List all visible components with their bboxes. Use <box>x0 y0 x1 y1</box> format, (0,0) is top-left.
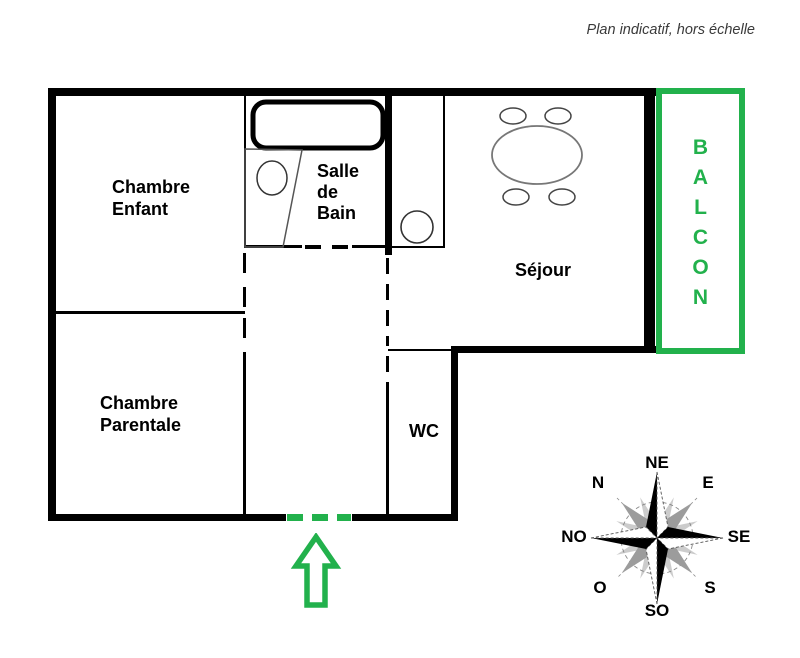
room-label-sejour: Séjour <box>515 259 571 281</box>
compass-label-o: O <box>593 578 606 598</box>
wall-hallway-left <box>243 364 246 516</box>
hallway-right-dashes-upper <box>386 258 389 346</box>
wall-closet-bottom <box>388 246 445 248</box>
balcony-letter: B <box>693 133 708 163</box>
wall-left <box>48 88 56 521</box>
balcony-letter: C <box>693 223 708 253</box>
wall-wc-right <box>451 346 458 521</box>
wall-right-outer <box>644 88 655 353</box>
room-label-chambre-enfant: Chambre Enfant <box>112 176 190 220</box>
bathroom-door-dashes <box>305 245 349 249</box>
balcony-letter: N <box>693 283 708 313</box>
compass-label-n: N <box>592 473 604 493</box>
entrance-arrow-icon <box>290 533 342 609</box>
wall-bottom-left <box>48 514 286 521</box>
balcony-letter: A <box>693 163 708 193</box>
floor-plan: Plan indicatif, hors échelle B A L C O N <box>0 0 800 658</box>
wall-wc-left <box>386 398 389 516</box>
wall-bottom-right <box>352 514 458 521</box>
wall-parental-top <box>52 311 245 314</box>
room-label-wc: WC <box>409 420 439 442</box>
wall-closet-right <box>443 92 445 248</box>
wc-door-dashes <box>386 356 389 398</box>
compass-label-ne: NE <box>645 453 669 473</box>
compass-label-no: NO <box>561 527 587 547</box>
water-heater-icon <box>399 209 435 245</box>
wall-top <box>48 88 656 96</box>
balcony-letter: O <box>692 253 708 283</box>
wall-bathroom-bottom-right <box>352 245 388 248</box>
wall-sejour-bottom <box>451 346 656 353</box>
balcony-letter: L <box>694 193 707 223</box>
dining-table-icon <box>490 103 602 209</box>
parentale-door-dashes <box>243 318 246 364</box>
sink-icon <box>244 146 306 250</box>
compass-label-so: SO <box>645 601 670 621</box>
entrance-door-dashes <box>287 514 351 521</box>
room-label-salle-de-bain: Salle de Bain <box>317 161 359 224</box>
bathtub-icon <box>249 98 387 152</box>
balcony-area: B A L C O N <box>656 88 745 354</box>
compass-label-e: E <box>702 473 713 493</box>
compass-label-s: S <box>704 578 715 598</box>
enfant-door-dashes <box>243 253 246 308</box>
room-label-chambre-parentale: Chambre Parentale <box>100 392 181 436</box>
wall-wc-top <box>388 349 453 351</box>
compass-label-se: SE <box>728 527 751 547</box>
plan-disclaimer-title: Plan indicatif, hors échelle <box>587 22 755 38</box>
